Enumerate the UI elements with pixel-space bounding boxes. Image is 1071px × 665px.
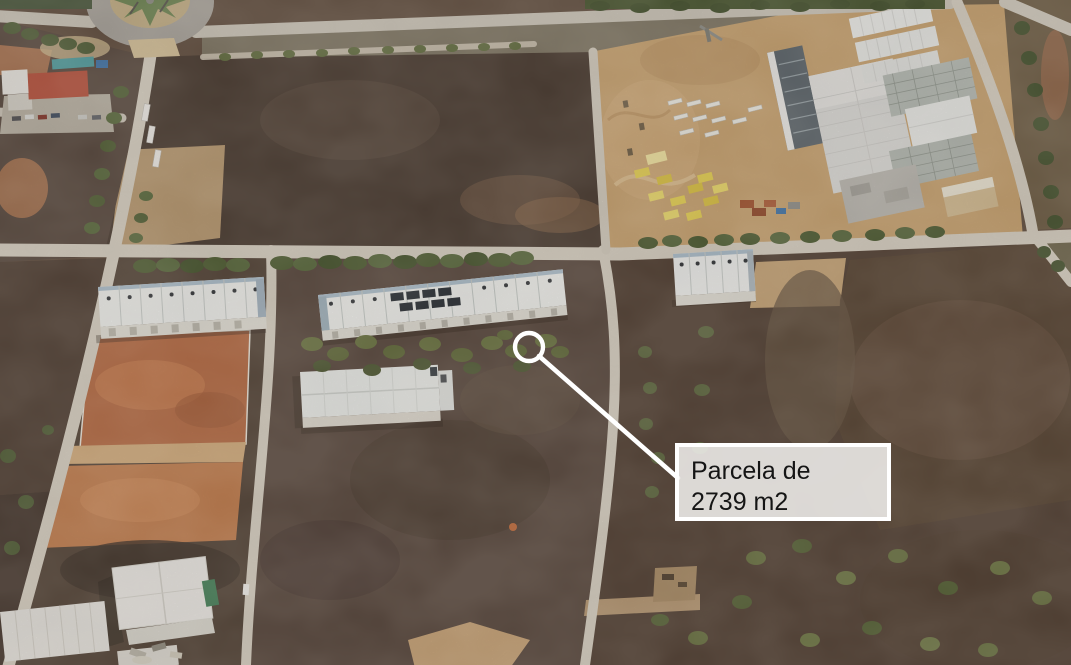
aerial-parcel-screenshot: Parcela de 2739 m2 (0, 0, 1071, 665)
parcel-label-callout: Parcela de 2739 m2 (675, 443, 891, 521)
aerial-map-canvas (0, 0, 1071, 665)
parcel-label-line1: Parcela de (691, 456, 881, 487)
parcel-label-line2: 2739 m2 (691, 487, 881, 518)
